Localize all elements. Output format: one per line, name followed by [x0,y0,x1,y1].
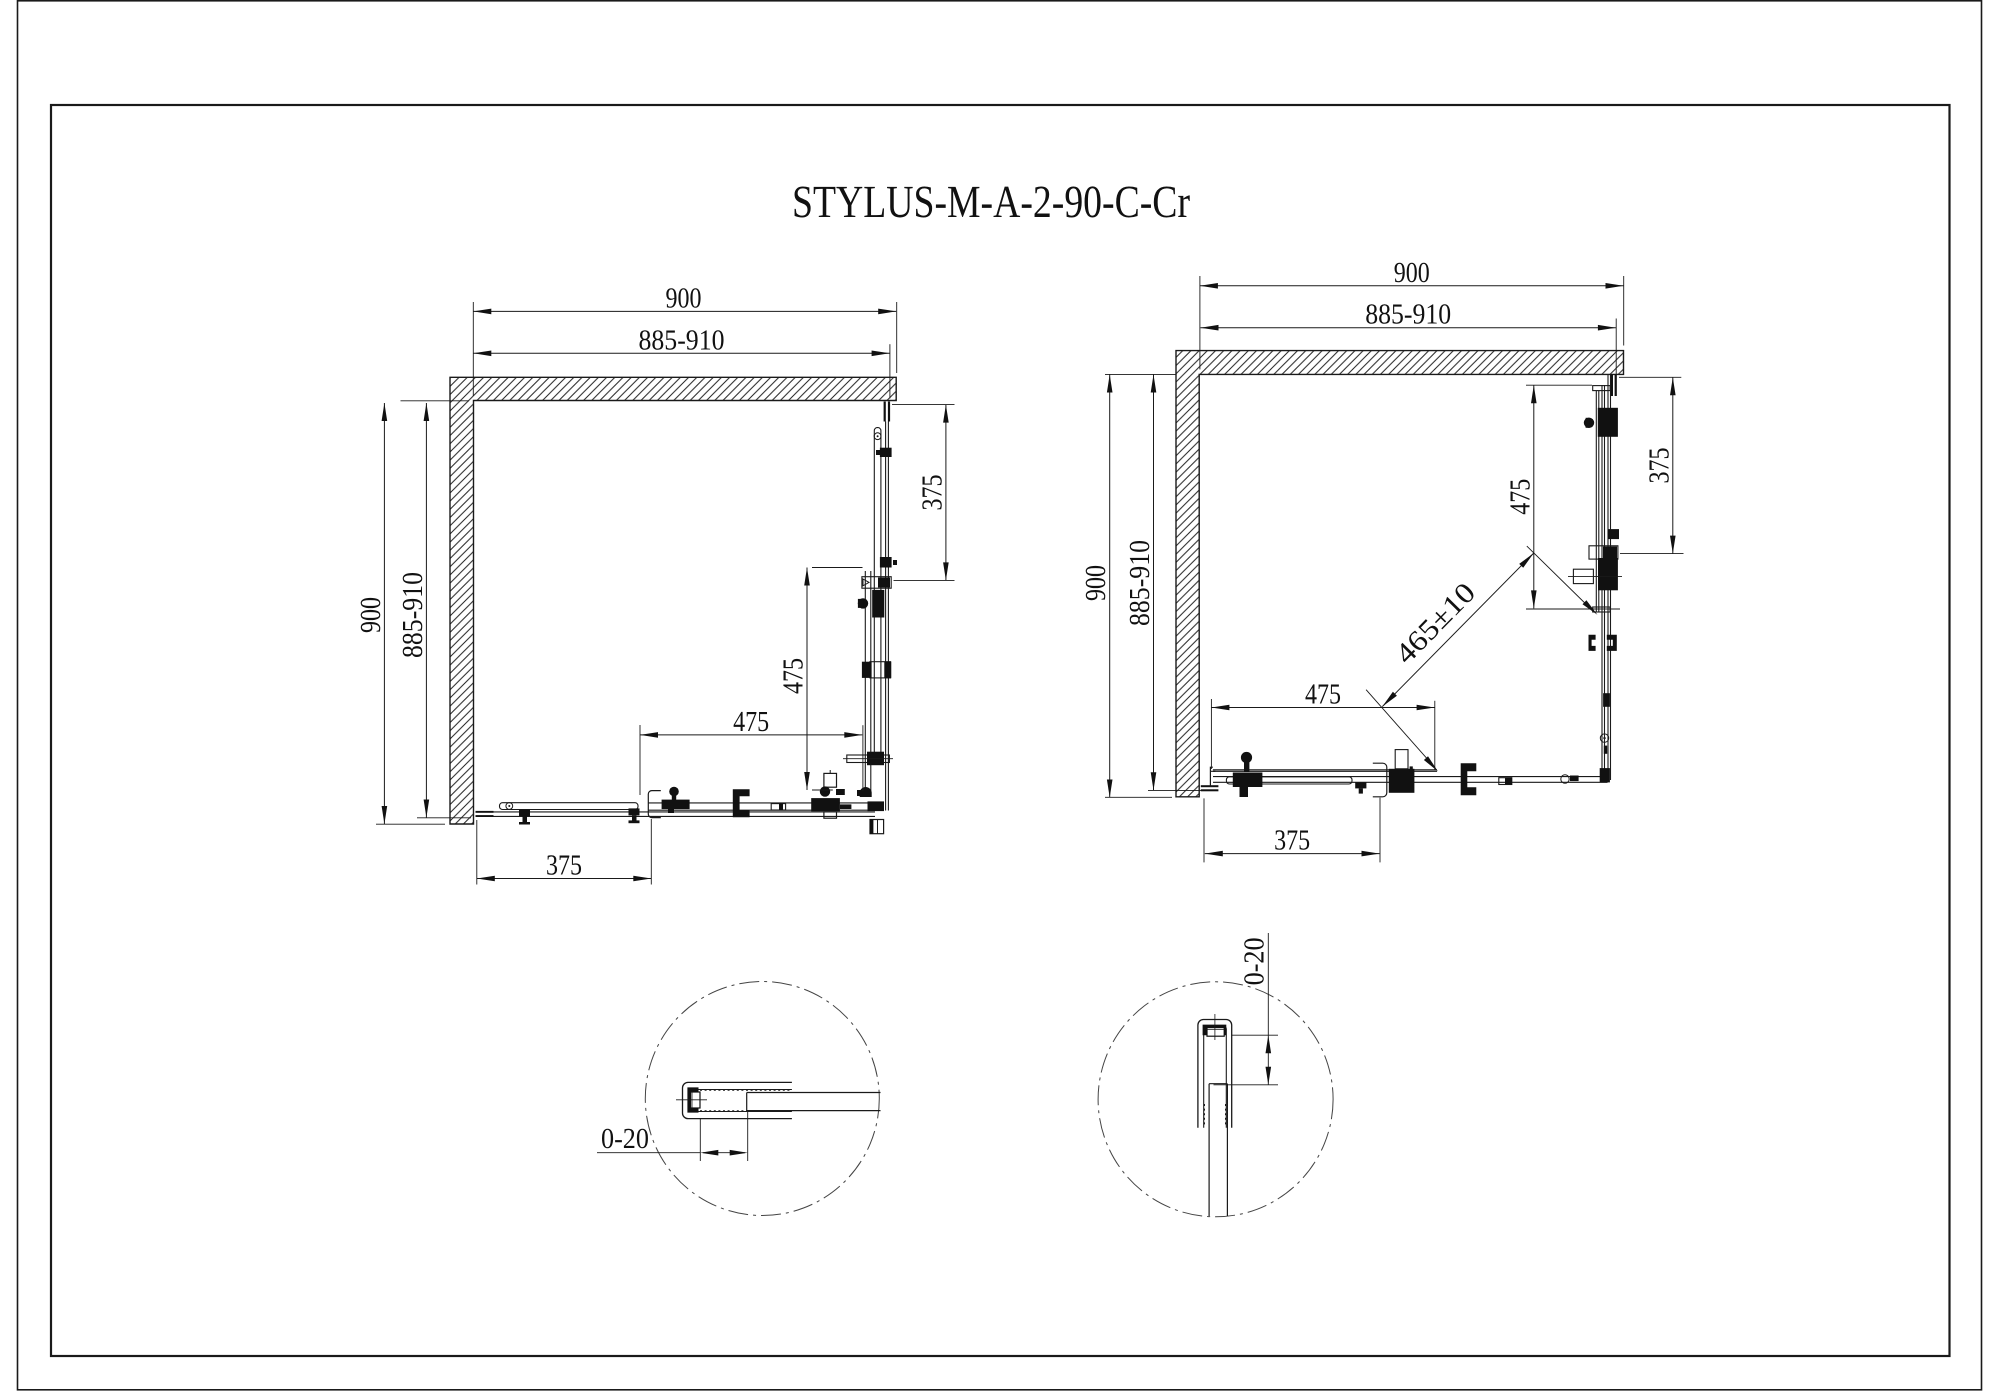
svg-text:0-20: 0-20 [601,1123,649,1155]
svg-text:475: 475 [733,706,769,738]
svg-text:885-910: 885-910 [1365,299,1451,331]
svg-text:885-910: 885-910 [397,572,429,658]
svg-text:475: 475 [1504,479,1536,515]
svg-text:STYLUS-M-A-2-90-C-Cr: STYLUS-M-A-2-90-C-Cr [792,176,1190,227]
svg-text:375: 375 [1274,825,1310,857]
svg-text:375: 375 [916,475,948,511]
svg-text:900: 900 [666,282,702,314]
svg-text:475: 475 [1305,679,1341,711]
svg-text:375: 375 [546,850,582,882]
svg-text:885-910: 885-910 [1124,540,1156,626]
svg-text:0-20: 0-20 [1239,937,1271,985]
svg-text:475: 475 [778,658,810,694]
svg-text:900: 900 [1394,257,1430,289]
svg-text:900: 900 [1080,565,1112,601]
svg-text:885-910: 885-910 [639,324,725,356]
svg-text:375: 375 [1643,447,1675,483]
svg-text:900: 900 [355,597,387,633]
